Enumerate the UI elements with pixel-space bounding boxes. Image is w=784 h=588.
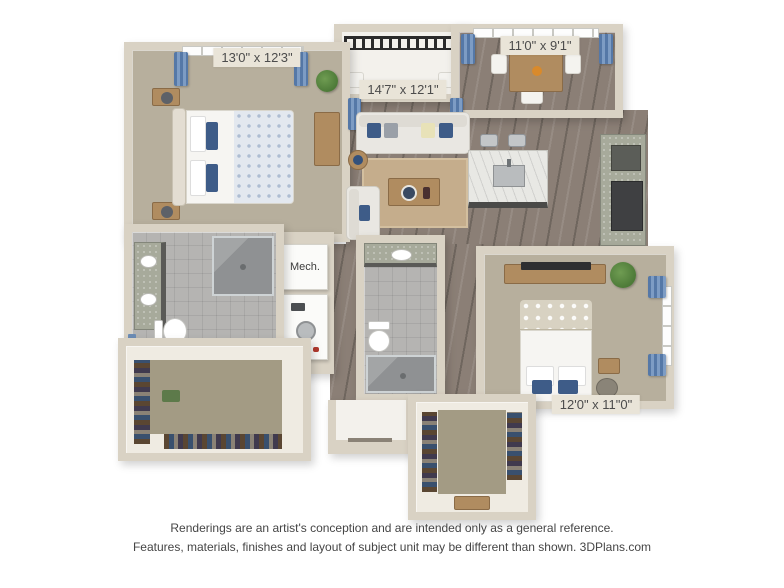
floorplan-canvas: Mech.: [0, 0, 784, 588]
bath2-shower: [366, 355, 436, 393]
sofa-pillow-4: [439, 123, 453, 138]
living-side-table: [348, 150, 368, 170]
bedroom1-bed: [172, 108, 296, 206]
bath1-shower: [212, 236, 274, 296]
bed1-pillow-2: [190, 160, 206, 196]
bed1-pillow-1: [190, 116, 206, 152]
closet1-storage-box: [162, 390, 180, 402]
dining-chair-right: [565, 54, 581, 74]
mech-closet: Mech.: [282, 244, 328, 290]
bed1-pillow-blue-1: [206, 122, 218, 150]
bath2-toilet-bowl: [368, 330, 390, 352]
bed2-blanket: [520, 300, 592, 330]
entry-door: [348, 438, 392, 442]
sofa-pillow-3: [421, 123, 435, 138]
disclaimer-line-2: Features, materials, finishes and layout…: [0, 540, 784, 554]
bedroom1-lamp-bottom: [161, 206, 173, 218]
bedroom1-curtain-left: [174, 52, 188, 86]
bath1-shower-drain: [240, 264, 246, 270]
bath2-vanity: [364, 243, 437, 267]
loveseat-pillow: [359, 205, 370, 221]
bath2-shower-drain: [400, 373, 406, 379]
bedroom1-dimensions: 13'0" x 12'3": [213, 48, 300, 67]
bed1-pillow-blue-2: [206, 164, 218, 192]
kitchen-cooktop: [611, 145, 641, 171]
bath1-sink-1: [140, 255, 157, 268]
bathroom-1: [124, 224, 284, 352]
disclaimer-line-1: Renderings are an artist's conception an…: [0, 521, 784, 535]
bed2-pillow-blue-1: [532, 380, 552, 394]
closet1-clothes-bottom: [164, 434, 282, 449]
kitchen-counter-right: [600, 134, 646, 246]
dryer-controls: [291, 303, 305, 311]
coffee-table-tray: [401, 185, 417, 201]
side-table-lamp: [353, 155, 363, 165]
bath2-sink: [391, 249, 412, 261]
sofa-pillow-1: [367, 123, 381, 138]
bedroom2-tv-console: [504, 264, 606, 284]
entry-floor: [336, 400, 406, 440]
bathroom-2: [356, 235, 445, 402]
mech-label: Mech.: [290, 261, 320, 273]
closet2-clothes-right: [507, 412, 522, 480]
bed1-duvet: [234, 111, 293, 203]
washer-knob-red: [313, 347, 319, 352]
dining-chair-left: [491, 54, 507, 74]
bedroom2-plant: [610, 262, 636, 288]
coffee-table-decor: [423, 187, 430, 199]
balcony-railing: [344, 36, 460, 50]
dining-dimensions: 11'0" x 9'1": [500, 36, 579, 55]
bath2-toilet-tank: [368, 321, 390, 330]
island-sink: [493, 165, 525, 187]
dining-curtain-right: [599, 34, 613, 64]
kitchen-island: [468, 150, 548, 208]
living-dimensions: 14'7" x 12'1": [359, 80, 446, 99]
sofa-pillow-2: [384, 123, 398, 138]
table-centerpiece: [532, 66, 542, 76]
bedroom1-plant: [316, 70, 338, 92]
bath1-vanity: [134, 242, 166, 330]
bedroom1-dresser: [314, 112, 340, 166]
kitchen-stool-1: [480, 134, 498, 147]
bedroom2-curtain-bottom: [648, 354, 666, 376]
bedroom-1: [124, 42, 350, 242]
bedroom2-bed: [520, 300, 592, 402]
island-faucet: [507, 159, 511, 167]
closet-2: [408, 394, 536, 520]
bedroom2-dimensions: 12'0" x 11"0": [552, 395, 640, 414]
bedroom2-nightstand: [598, 358, 620, 374]
bath2-toilet: [366, 321, 394, 353]
bed1-headboard: [172, 108, 186, 206]
closet-1: [118, 338, 311, 461]
kitchen-stool-2: [508, 134, 526, 147]
closet2-carpet: [438, 410, 506, 494]
entry-vestibule: [328, 400, 414, 454]
dining-curtain-left: [461, 34, 475, 64]
closet1-clothes-left: [134, 360, 150, 444]
closet2-clothes-left: [422, 412, 437, 492]
loveseat-back: [349, 189, 359, 239]
closet2-trunk: [454, 496, 490, 510]
living-sofa: [356, 112, 470, 154]
bedroom2-curtain-top: [648, 276, 666, 298]
bath1-sink-2: [140, 293, 157, 306]
bedroom2-tv: [521, 262, 591, 270]
kitchen-refrigerator: [611, 181, 643, 231]
bedroom-2: [476, 246, 674, 409]
bedroom1-nightstand-top: [152, 88, 180, 106]
bed2-pillow-blue-2: [558, 380, 578, 394]
living-coffee-table: [388, 178, 440, 206]
bedroom1-lamp-top: [161, 92, 173, 104]
living-loveseat: [346, 186, 380, 240]
